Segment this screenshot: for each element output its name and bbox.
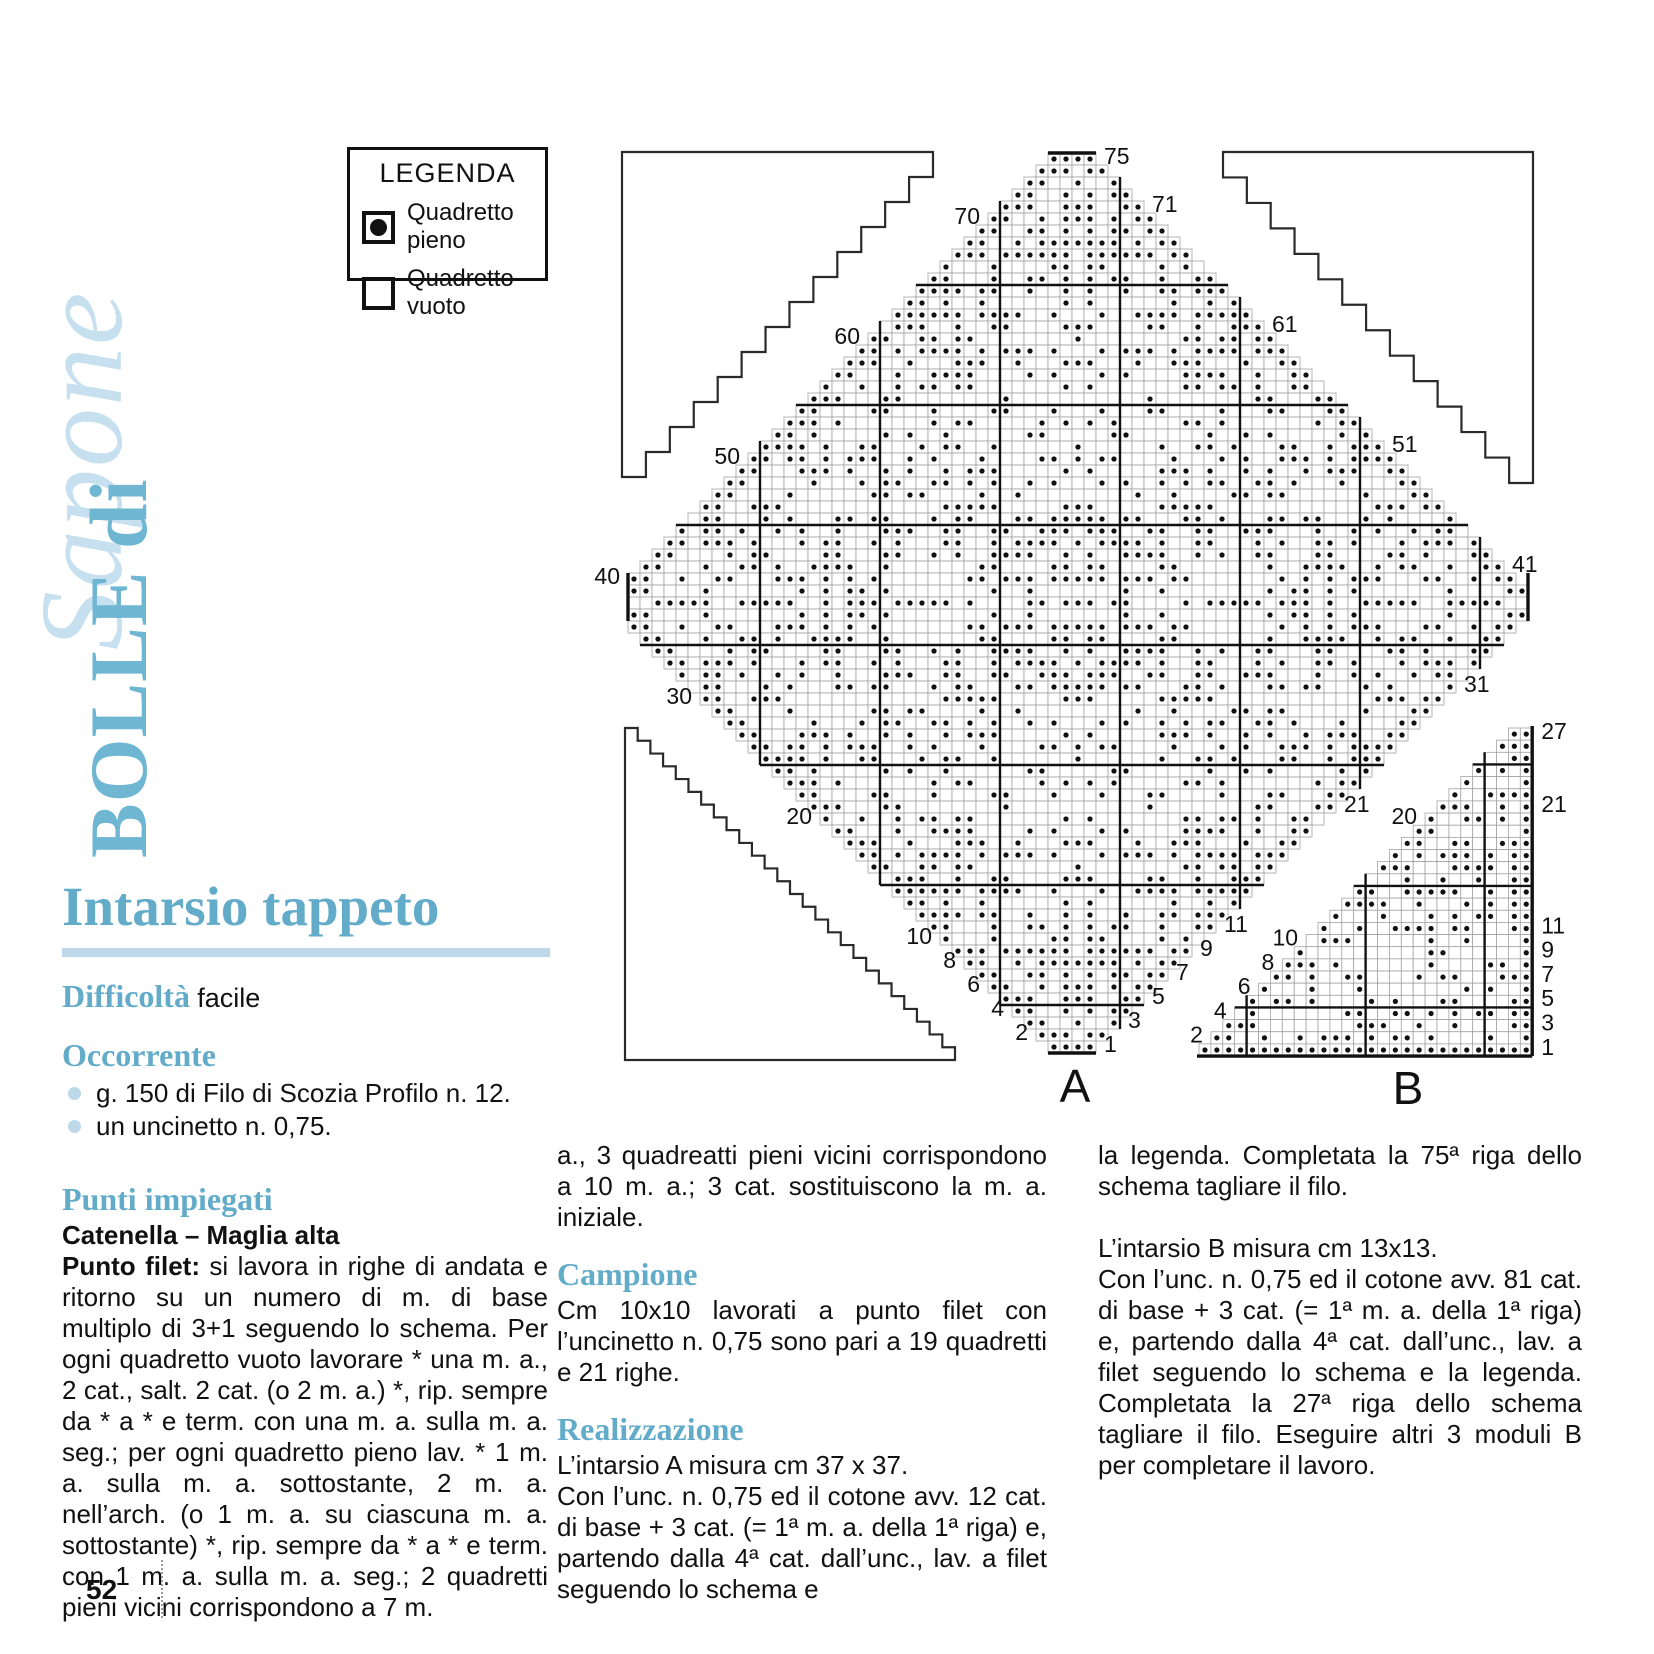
svg-text:61: 61 (1272, 311, 1298, 337)
svg-text:30: 30 (666, 683, 692, 709)
svg-text:9: 9 (1200, 935, 1213, 961)
section-heading-occorrente: Occorrente (62, 1038, 548, 1072)
chart-b-label: B (1393, 1062, 1424, 1114)
difficulty-value: facile (197, 983, 260, 1013)
svg-text:71: 71 (1152, 191, 1178, 217)
svg-text:6: 6 (967, 971, 980, 997)
magazine-page: Sapone BOLLE di LEGENDA Quadretto pieno … (0, 0, 1654, 1654)
svg-text:31: 31 (1464, 671, 1490, 697)
svg-text:70: 70 (954, 203, 980, 229)
page-title: Intarsio tappeto (62, 878, 548, 936)
article-right-column: la legenda. Completata la 75ª riga dello… (1098, 1140, 1582, 1481)
bullet-icon (68, 1087, 81, 1100)
realizzazione-col3-p2: L’intarsio B misura cm 13x13. (1098, 1233, 1582, 1264)
realizzazione-p1: L’intarsio A misura cm 37 x 37. (557, 1450, 1047, 1481)
realizzazione-col3-p1: la legenda. Completata la 75ª riga dello… (1098, 1140, 1582, 1202)
difficulty-label: Difficoltà (62, 978, 190, 1014)
svg-text:10: 10 (906, 923, 932, 949)
svg-text:11: 11 (1224, 911, 1248, 937)
svg-text:4: 4 (991, 995, 1004, 1021)
continuation-paragraph: a., 3 quadreatti pieni vicini corrispond… (557, 1140, 1047, 1233)
list-item: g. 150 di Filo di Scozia Profilo n. 12. (62, 1078, 548, 1109)
occorrente-list: g. 150 di Filo di Scozia Profilo n. 12. … (62, 1078, 548, 1142)
section-heading-punti: Punti impiegati (62, 1182, 548, 1216)
svg-text:51: 51 (1392, 431, 1418, 457)
chart-a-label: A (1060, 1060, 1091, 1112)
svg-text:20: 20 (786, 803, 812, 829)
svg-text:5: 5 (1152, 983, 1165, 1009)
page-footer: 52 (86, 1560, 163, 1618)
svg-text:7: 7 (1176, 959, 1189, 985)
svg-text:50: 50 (714, 443, 740, 469)
article-left-column: Intarsio tappeto Difficoltà facile Occor… (62, 878, 548, 1623)
svg-text:1: 1 (1104, 1031, 1117, 1057)
svg-text:41: 41 (1512, 551, 1538, 577)
svg-text:8: 8 (943, 947, 956, 973)
bullet-icon (68, 1120, 81, 1133)
section-heading-realizzazione: Realizzazione (557, 1412, 1047, 1446)
realizzazione-col3-p3: Con l’unc. n. 0,75 ed il cotone avv. 81 … (1098, 1264, 1582, 1481)
svg-text:21: 21 (1344, 791, 1370, 817)
campione-body: Cm 10x10 lavorati a punto filet con l’un… (557, 1295, 1047, 1388)
page-number: 52 (86, 1574, 117, 1606)
realizzazione-p2: Con l’unc. n. 0,75 ed il cotone avv. 12 … (557, 1481, 1047, 1605)
title-underline-bar (62, 948, 550, 957)
svg-text:2: 2 (1015, 1019, 1028, 1045)
svg-text:75: 75 (1104, 143, 1130, 169)
punti-subheading: Catenella – Maglia alta (62, 1220, 548, 1251)
svg-text:3: 3 (1128, 1007, 1141, 1033)
punti-lead: Punto filet: (62, 1251, 200, 1281)
svg-text:40: 40 (594, 563, 620, 589)
footer-divider (161, 1560, 163, 1618)
list-item: un uncinetto n. 0,75. (62, 1111, 548, 1142)
section-heading-campione: Campione (557, 1257, 1047, 1291)
difficulty-line: Difficoltà facile (62, 981, 548, 1014)
article-middle-column: a., 3 quadreatti pieni vicini corrispond… (557, 1140, 1047, 1605)
svg-text:60: 60 (834, 323, 860, 349)
